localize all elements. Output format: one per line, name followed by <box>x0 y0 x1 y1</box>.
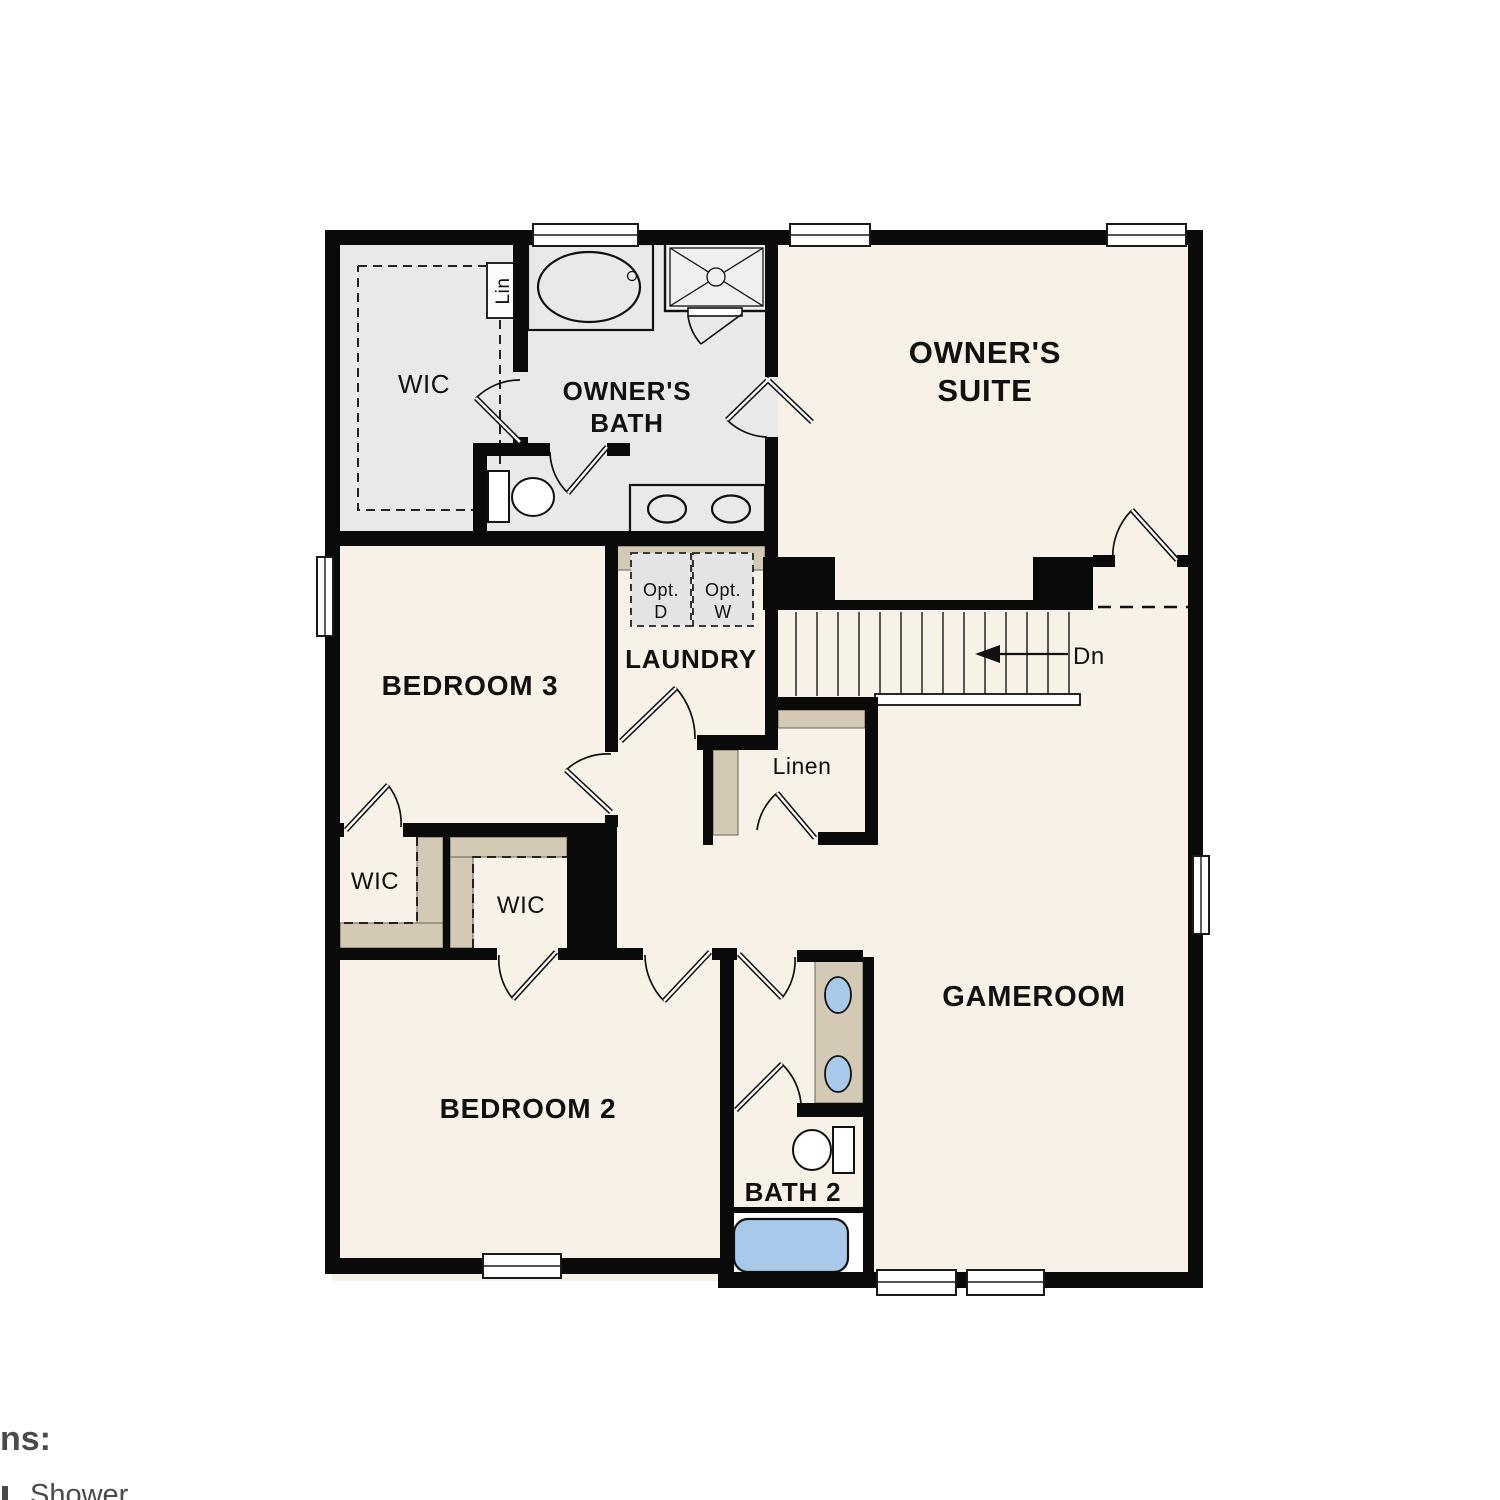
bath2-sink-bottom-icon <box>825 1056 851 1092</box>
owners-toilet-bowl-icon <box>512 478 554 516</box>
floor-plan-page: OWNER'S SUITE OWNER'S BATH WIC Lin BEDRO… <box>0 0 1500 1500</box>
label-stairs-dn: Dn <box>1073 643 1105 670</box>
label-bedroom2: BEDROOM 2 <box>440 1093 617 1124</box>
shower-door-panel <box>688 308 742 316</box>
shower-drain-icon <box>707 268 725 286</box>
wic2-shelf-top <box>450 837 567 857</box>
label-opt-dryer-line1: Opt. <box>643 580 679 600</box>
label-opt-dryer-line2: D <box>654 602 668 622</box>
label-bath2: BATH 2 <box>745 1177 842 1207</box>
bath2-toilet-tank-icon <box>833 1127 854 1173</box>
stair-railing <box>875 694 1080 705</box>
legend-swatch-fragment <box>2 1486 8 1500</box>
wic3-shelf-bottom <box>340 923 443 948</box>
label-opt-washer-line1: Opt. <box>705 580 741 600</box>
floor-plan: OWNER'S SUITE OWNER'S BATH WIC Lin BEDRO… <box>0 0 1500 1500</box>
linen-shelf-top <box>778 710 865 728</box>
label-owners-suite-line1: OWNER'S <box>909 335 1061 370</box>
label-owners-wic: WIC <box>398 369 450 399</box>
floor-fills <box>332 237 1196 1281</box>
legend-item-shower: Shower <box>30 1479 128 1500</box>
label-opt-washer-line2: W <box>714 602 732 622</box>
label-gameroom: GAMEROOM <box>942 981 1126 1013</box>
label-owners-bath-line1: OWNER'S <box>563 376 692 406</box>
label-bedroom3-wic: WIC <box>351 868 399 895</box>
bath2-sink-top-icon <box>825 977 851 1013</box>
label-lin-cabinet: Lin <box>493 278 514 305</box>
owners-toilet-tank-icon <box>488 471 509 522</box>
wic2-shelf-left <box>450 857 473 948</box>
label-linen: Linen <box>773 753 832 779</box>
label-owners-bath-line2: BATH <box>590 408 663 438</box>
label-bedroom3: BEDROOM 3 <box>382 670 559 701</box>
bath2-toilet-bowl-icon <box>793 1130 831 1170</box>
linen-shelf-left <box>713 750 738 835</box>
legend-heading-fragment: ns: <box>0 1420 51 1459</box>
bath2-tub-icon <box>734 1219 848 1272</box>
label-bedroom2-wic: WIC <box>497 892 545 919</box>
label-laundry: LAUNDRY <box>625 644 757 674</box>
label-owners-suite-line2: SUITE <box>937 373 1032 408</box>
